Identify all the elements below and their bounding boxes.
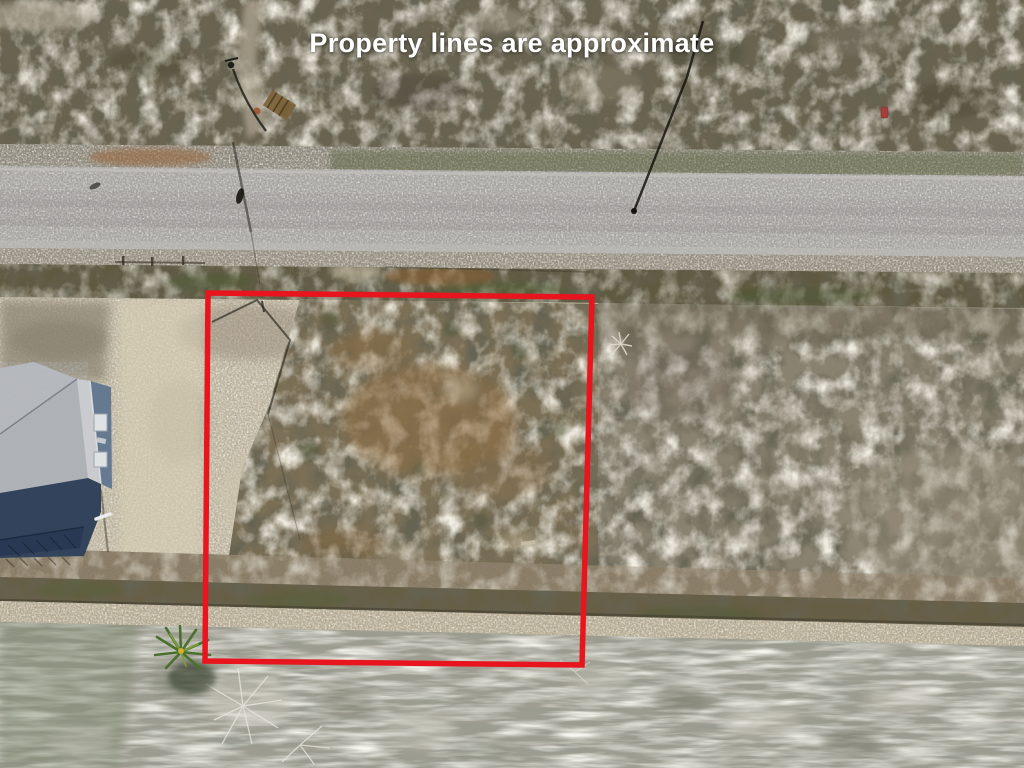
right-scrubland xyxy=(595,300,1024,605)
red-marker xyxy=(881,107,888,118)
top-scrubland xyxy=(0,0,1024,170)
house-window xyxy=(94,414,107,431)
house-window xyxy=(94,452,107,467)
aerial-scene xyxy=(0,0,1024,768)
palm-bloom xyxy=(178,648,184,654)
road xyxy=(0,162,1024,262)
aerial-photo: Property lines are approximate xyxy=(0,0,1024,768)
